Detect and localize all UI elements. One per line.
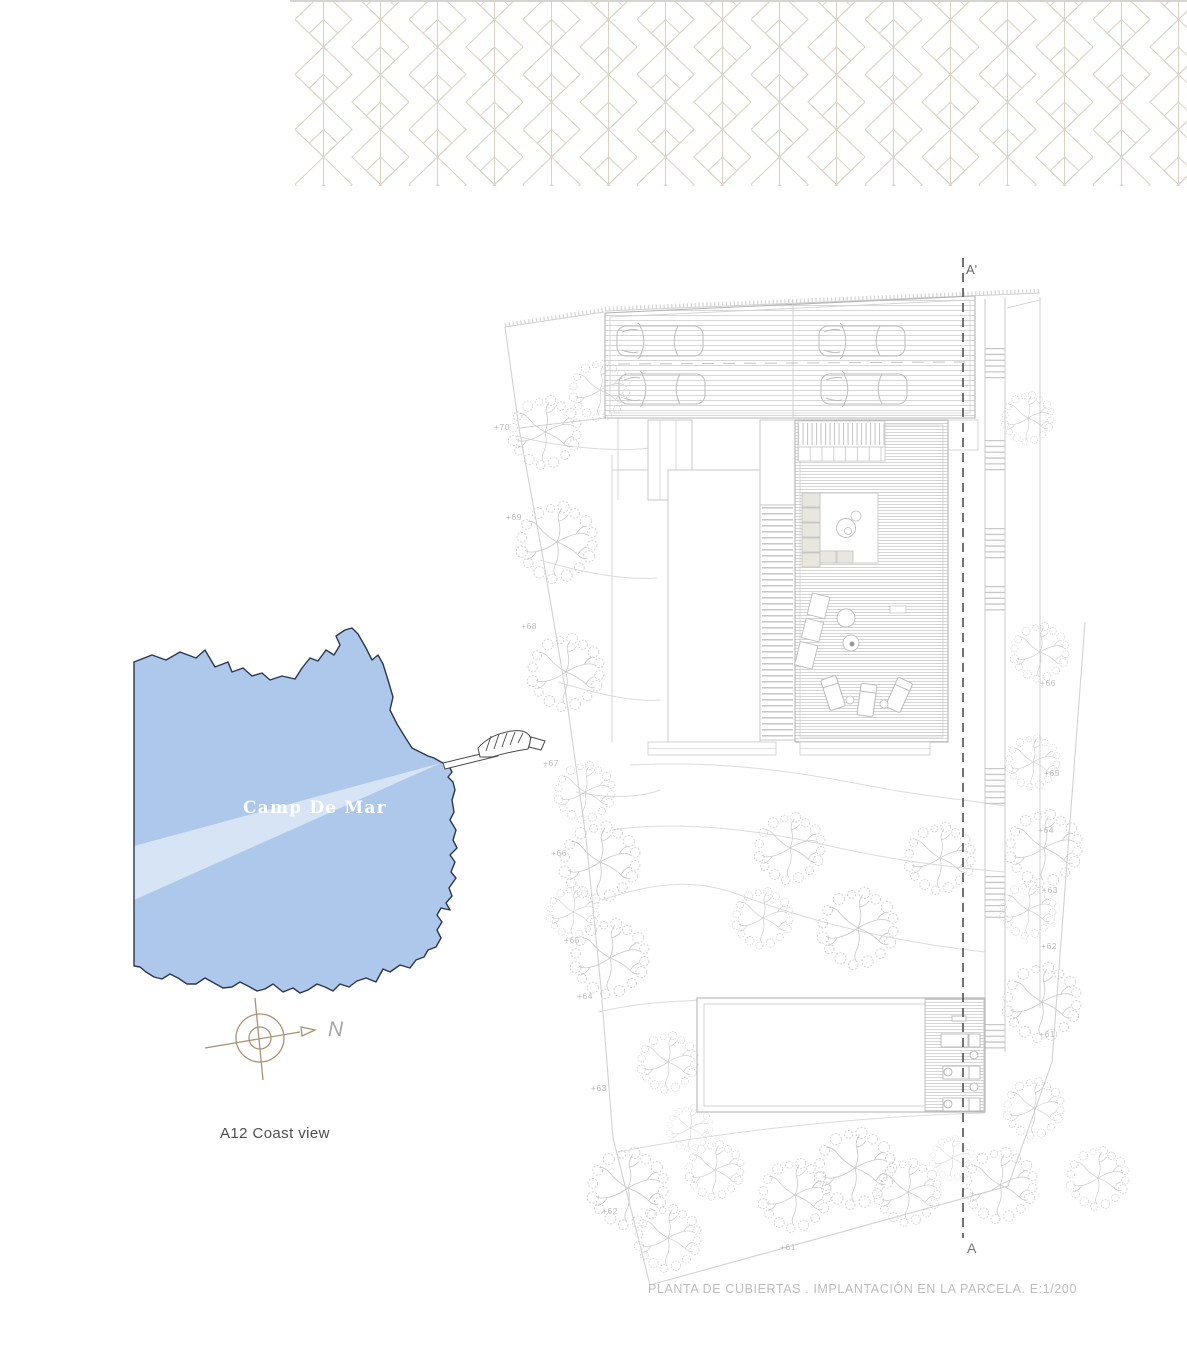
elevation-label: +62 xyxy=(1041,941,1057,951)
elevation-label: +68 xyxy=(521,621,537,631)
elevation-label: +63 xyxy=(591,1083,607,1093)
elevation-label: +64 xyxy=(577,991,593,1001)
pergola xyxy=(798,421,885,461)
site-plan: A' A +70 +69 +68 +67 +66 +65 +64 +63 +62… xyxy=(494,258,1129,1296)
parking-deck xyxy=(605,296,975,418)
drawing-sheet: A' A +70 +69 +68 +67 +66 +65 +64 +63 +62… xyxy=(0,0,1187,1350)
elevation-label: +64 xyxy=(1038,825,1054,835)
section-label-top: A' xyxy=(966,262,977,277)
coast-map: Camp De Mar xyxy=(134,628,545,993)
louver-strip xyxy=(760,505,795,740)
plan-caption: PLANTA DE CUBIERTAS . IMPLANTACIÓN EN LA… xyxy=(648,1281,1077,1296)
view-title: A12 Coast view xyxy=(220,1125,330,1142)
compass-rose xyxy=(205,998,315,1080)
terrace-steps xyxy=(648,742,930,755)
pier-structure xyxy=(443,731,545,769)
north-label: N xyxy=(328,1018,344,1041)
bay-name-label: Camp De Mar xyxy=(243,798,387,818)
elevation-label: +61 xyxy=(1039,1029,1055,1039)
roof-deck xyxy=(795,420,948,742)
elevation-label: +66 xyxy=(1040,678,1056,688)
elevation-label: +66 xyxy=(551,848,567,858)
elevation-label: +65 xyxy=(564,935,580,945)
house-roof xyxy=(612,418,948,755)
sheet-graphics: A' A +70 +69 +68 +67 +66 +65 +64 +63 +62… xyxy=(0,0,1187,1350)
elevation-label: +61 xyxy=(780,1242,796,1252)
elevation-label: +69 xyxy=(506,512,522,522)
elevation-label: +65 xyxy=(1044,768,1060,778)
elevation-label: +62 xyxy=(602,1206,618,1216)
header-pattern-band xyxy=(295,0,1187,186)
elevation-label: +63 xyxy=(1042,885,1058,895)
elevation-label: +67 xyxy=(543,758,559,768)
seating-area xyxy=(802,493,878,567)
section-label-bottom: A xyxy=(967,1240,977,1256)
pool xyxy=(697,998,985,1112)
elevation-label: +70 xyxy=(494,422,510,432)
